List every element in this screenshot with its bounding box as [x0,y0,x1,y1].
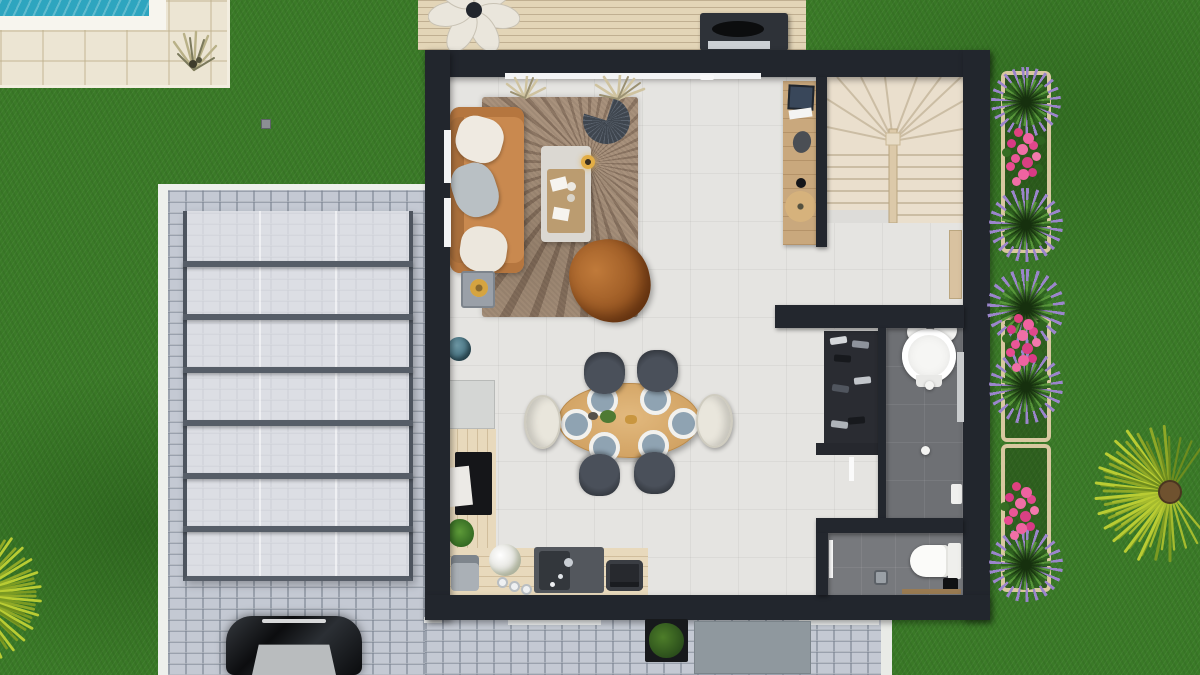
canister [497,577,508,588]
flower-vase [489,544,521,576]
spiky-plant [989,528,1063,602]
fan-palm-partial [0,515,74,675]
interior-wall [816,518,963,533]
flower-lounge-chair [428,0,520,52]
folded-clothes [848,416,866,424]
sink-faucet [564,558,573,567]
entry-mat [694,621,811,674]
wc-door-leaf [829,540,833,578]
low-cabinet [816,443,880,455]
window-left [444,130,451,183]
boxwood-shrub [649,623,684,658]
toilet-tank [948,543,961,579]
curtain-tie [700,75,714,80]
window-right [957,352,964,422]
place-setting [668,408,699,439]
canopy-beam [183,420,413,426]
centerpiece-greenery [600,410,616,423]
gold-floor-lamp [581,155,595,169]
dining-armchair-cream [524,395,561,449]
fridge [447,380,495,429]
glass-canopy-carport [183,211,413,581]
bowl [567,182,576,191]
interior-wall [878,328,886,520]
wall-shelf [951,484,962,504]
canister [521,584,532,595]
swimming-pool-water [0,0,149,16]
bowl [567,194,575,202]
floor-plan-scene [0,0,1200,675]
car-windshield [252,638,336,675]
barbecue-grill [700,13,788,51]
folded-clothes [834,354,851,362]
herb-plant [448,519,474,547]
desk-accessory [796,178,806,188]
rose-cluster [1014,128,1023,137]
wood-window-sill [902,589,961,594]
centerpiece-gold-dish [625,415,637,424]
magazine [552,207,570,222]
waste-bin [874,570,888,585]
sill-plant [590,75,646,101]
parked-car [226,616,362,675]
fan-palm [1062,400,1200,585]
centerpiece-bowl [588,412,598,420]
spiky-plant [991,67,1061,137]
shrub-planter [645,619,688,662]
hall-shelf [949,230,962,299]
globe-decor [447,337,471,361]
exterior-wall-bottom [425,595,990,620]
open-wardrobe [824,329,880,445]
car-front-trim [262,619,326,623]
folded-clothes [832,384,850,393]
canopy-beam [183,261,413,267]
interior-wall [816,77,827,247]
canopy-beam [183,367,413,373]
folded-clothes [854,376,872,385]
folded-clothes [830,336,848,345]
ceiling-spot [925,381,934,390]
toaster [606,560,643,591]
ceiling-spot [921,446,930,455]
sink-basin [539,551,570,590]
canopy-beam [183,526,413,532]
bathroom-door-leaf [849,457,854,481]
canopy-beam [183,314,413,320]
rose-cluster [1014,314,1023,323]
dining-armchair-cream [696,394,733,448]
toilet-bowl [910,545,950,577]
spiky-plant [989,188,1063,262]
sill-plant [503,76,547,100]
canopy-beam [183,473,413,479]
spiky-plant [987,269,1065,347]
exterior-wall-right [963,50,990,620]
kitchen-sink-unit [534,547,604,593]
dining-chair-dark [584,352,625,394]
utility-marker [261,119,271,129]
rose-cluster [1012,482,1021,491]
spiky-plant [989,350,1063,424]
dining-chair-dark [637,350,678,392]
canister [509,581,520,592]
side-table [461,271,495,308]
table-lamp [470,279,488,297]
dining-chair-dark [634,452,675,494]
interior-wall [775,305,964,328]
winder-staircase [827,77,963,223]
interior-wall [816,533,828,595]
window-left [444,198,451,247]
rattan-stool [785,191,816,222]
grill-side-shelf [708,41,770,49]
grill-lid-handle [712,21,764,37]
coffee-machine [451,555,479,591]
dining-chair-dark [579,454,620,496]
curb-edge-right [881,618,892,675]
folded-clothes [831,420,849,429]
folded-clothes [852,340,870,349]
ornamental-grass-tuft [168,28,220,78]
